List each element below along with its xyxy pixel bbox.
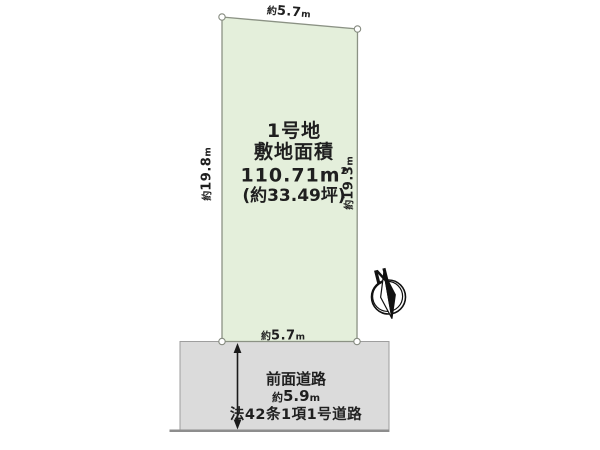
dimension-top: 約5.7m	[266, 0, 311, 21]
compass: N	[372, 265, 406, 320]
dimension-left: 約19.8m	[196, 147, 215, 200]
corner-marker-bottom-right	[354, 338, 360, 344]
parcel-area-unit: m	[320, 164, 341, 186]
parcel-area-tsubo: (約33.49坪)	[240, 186, 347, 207]
land-plot-diagram: { "colors": { "plot_fill": "#e4efdb", "p…	[0, 0, 600, 450]
road-designation: 法42条1項1号道路	[230, 407, 362, 424]
dim-top-value: 5.7	[276, 3, 302, 20]
parcel-area-superscript: 2	[341, 166, 348, 177]
dim-bottom-value: 5.7	[271, 329, 296, 344]
parcel-number: 1号地	[240, 121, 347, 142]
corner-marker-top-left	[219, 14, 225, 20]
dim-left-unit: m	[204, 147, 214, 156]
parcel-area-value: 110.71	[240, 164, 319, 186]
road-name: 前面道路	[230, 371, 362, 388]
road-width-unit: m	[310, 393, 320, 404]
dim-left-value: 19.8	[200, 157, 215, 191]
road-width-prefix: 約	[272, 391, 283, 404]
dim-top-unit: m	[301, 10, 311, 21]
road-width: 約5.9m	[230, 388, 362, 407]
corner-marker-top-right	[354, 26, 360, 32]
parcel-label: 1号地 敷地面積 110.71m2 (約33.49坪)	[240, 121, 347, 206]
compass-north-letter: N	[372, 265, 392, 289]
dim-bottom-unit: m	[296, 333, 305, 343]
dim-left-prefix: 約	[203, 191, 214, 201]
corner-marker-bottom-left	[219, 338, 225, 344]
dim-bottom-prefix: 約	[261, 332, 271, 343]
road-width-value: 5.9	[283, 387, 310, 405]
parcel-area-sqm: 110.71m2	[240, 162, 347, 186]
parcel-area-caption: 敷地面積	[240, 142, 347, 163]
dimension-bottom: 約5.7m	[261, 325, 305, 344]
road-label: 前面道路 約5.9m 法42条1項1号道路	[230, 371, 362, 424]
